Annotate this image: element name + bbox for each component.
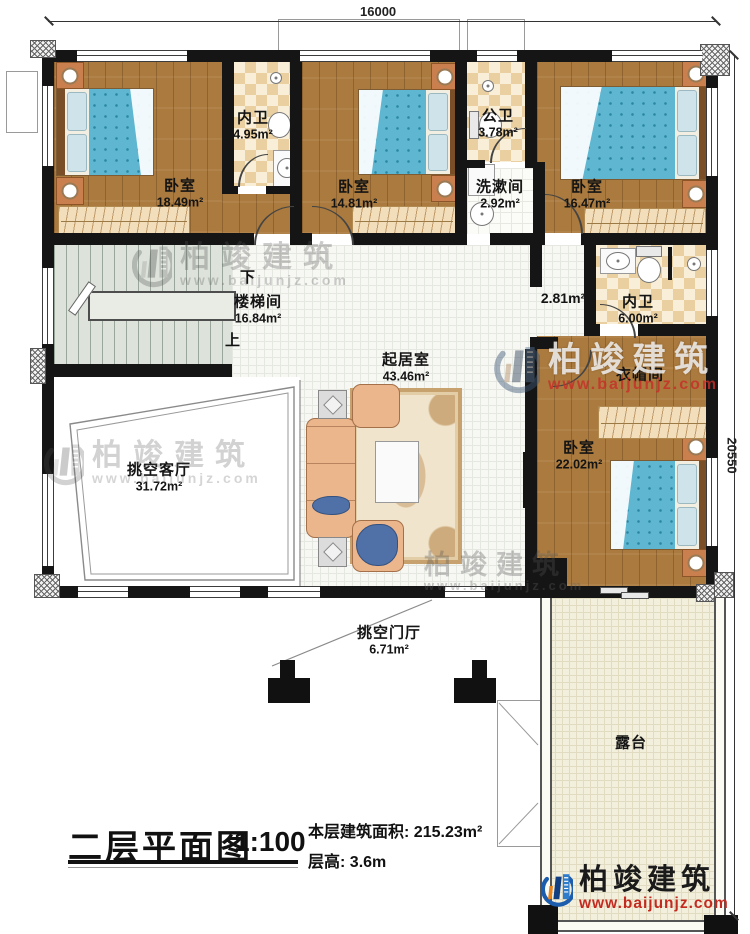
wardrobe-cloakroom: [598, 406, 710, 439]
room-label-bath-public: 公卫3.78m²: [478, 109, 518, 140]
window: [706, 88, 718, 176]
room-label-void-living: 挑空客厅31.72m²: [127, 463, 191, 494]
stair-up-label: 上: [225, 329, 240, 350]
room-label-terrace: 露台: [615, 736, 647, 753]
nightstand: [56, 62, 84, 89]
bed-mattress: [561, 87, 675, 179]
armchair-top: [352, 384, 400, 428]
brand-logo: 柏竣建筑 www.baijunjz.com: [541, 858, 750, 920]
sliding-door-terrace: [621, 592, 649, 599]
window: [42, 86, 54, 166]
bed-bedroom-tr: [560, 86, 708, 180]
wall-bath-tl-bottom-a: [222, 186, 238, 194]
dimension-line-top: [48, 21, 716, 22]
hatch-corner: [30, 348, 46, 384]
wall-bath-right-bottom-a: [584, 324, 600, 336]
dimension-line-right: [734, 56, 735, 918]
stair-down-label: 下: [240, 266, 255, 287]
hatch-corner: [34, 574, 60, 598]
wall-bath-right-left: [584, 245, 596, 330]
window: [268, 586, 320, 598]
room-label-washroom: 洗漱间2.92m²: [476, 180, 524, 211]
sink-bath-right: [606, 252, 630, 270]
side-table: [318, 537, 347, 567]
window: [706, 458, 718, 546]
wall-bath-tl-bottom-b: [266, 186, 302, 194]
tv-cabinet: [523, 452, 537, 508]
floor-area-info: 本层建筑面积: 215.23m²: [308, 818, 482, 842]
room-label-stairwell: 楼梯间16.84m²: [234, 295, 282, 326]
room-label-bath-right: 内卫6.00m²: [618, 295, 658, 326]
room-label-bedroom-tl: 卧室18.49m²: [157, 179, 204, 210]
bed-pillows: [675, 461, 699, 549]
terrace-railing-bottom: [540, 920, 722, 932]
side-table: [318, 390, 347, 419]
wall-h1-b: [292, 233, 312, 245]
bed-headboard: [57, 89, 65, 175]
toilet-bath-right: [634, 246, 662, 284]
wardrobe-bedroom-tm: [352, 206, 456, 236]
room-label-bath-tl: 内卫4.95m²: [233, 111, 273, 142]
wall-h1-e: [581, 233, 718, 245]
wall-block-foyer: [535, 558, 567, 598]
window: [445, 586, 485, 598]
wall-bath-right-stub: [668, 247, 672, 280]
floor-drain: [270, 72, 282, 84]
bed-mattress: [89, 89, 153, 175]
coffee-table: [375, 441, 419, 503]
nightstand: [431, 175, 458, 202]
bed-bedroom-tl: [56, 88, 154, 176]
window: [77, 50, 187, 62]
wall-h1-c: [352, 233, 467, 245]
room-label-bedroom-tm: 卧室14.81m²: [331, 180, 378, 211]
room-label-hallway: 2.81m²: [541, 291, 585, 307]
wardrobe-bedroom-tl: [58, 206, 190, 236]
floor-drain: [482, 80, 494, 92]
window: [300, 50, 430, 62]
person-on-sofa: [312, 496, 350, 515]
floor-plan-canvas: 卧室18.49m² 内卫4.95m² 卧室14.81m² 公卫3.78m² 洗漱…: [0, 0, 750, 934]
wall-corridor-stub: [530, 337, 558, 349]
wall-bath-washroom-divider: [467, 160, 485, 168]
stair-landing: [88, 291, 236, 321]
room-label-bedroom-tr: 卧室16.47m²: [564, 180, 611, 211]
bed-pillows: [426, 90, 450, 174]
window: [42, 268, 54, 344]
brand-website: www.baijunjz.com: [579, 895, 729, 912]
shower-drain: [687, 257, 701, 271]
hatch-corner: [30, 40, 56, 58]
bed-mattress: [359, 90, 426, 174]
nightstand: [682, 549, 709, 577]
wall-corridor-left: [530, 245, 542, 287]
window: [477, 50, 517, 62]
bed-bedroom-br: [610, 460, 708, 550]
dimension-top-value: 16000: [360, 4, 396, 19]
room-label-bedroom-br: 卧室22.02m²: [556, 441, 603, 472]
section-marker-base: [268, 678, 310, 703]
room-label-living: 起居室43.46m²: [382, 353, 430, 384]
hatch-corner: [700, 44, 730, 76]
wall-h1-a: [42, 233, 254, 245]
brand-logo-icon: [541, 858, 573, 920]
wall-stair-bottom: [42, 364, 232, 377]
title-underline-thin: [68, 867, 298, 868]
room-label-void-foyer: 挑空门厅6.71m²: [357, 626, 421, 657]
dimension-right-value: 20550: [725, 437, 740, 473]
window: [78, 586, 128, 598]
window: [42, 474, 54, 566]
sofa-main: [306, 418, 356, 538]
bed-mattress: [611, 461, 675, 549]
window: [612, 50, 702, 62]
wall-bath-public-right: [525, 62, 537, 168]
title-underline: [68, 860, 298, 864]
wall-bath-right-bottom-b: [638, 324, 718, 336]
plan-scale: 1:100: [234, 826, 306, 858]
nightstand: [56, 177, 84, 205]
window: [706, 250, 718, 316]
person-on-armchair: [356, 524, 398, 566]
bed-pillows: [675, 87, 699, 179]
hatch-corner: [714, 572, 734, 598]
wall-h1-d: [490, 233, 545, 245]
brand-name: 柏竣建筑: [579, 864, 715, 896]
floor-height-info: 层高: 3.6m: [308, 848, 386, 872]
wall-bath-tl-left: [222, 62, 234, 194]
nightstand: [431, 63, 458, 90]
bed-bedroom-tm: [358, 89, 459, 175]
bed-pillows: [65, 89, 89, 175]
section-marker-base: [454, 678, 496, 703]
nightstand: [682, 180, 709, 208]
window: [190, 586, 240, 598]
wall-bedroom-tm-right: [455, 62, 467, 240]
room-label-cloakroom: 衣帽间: [616, 368, 664, 385]
